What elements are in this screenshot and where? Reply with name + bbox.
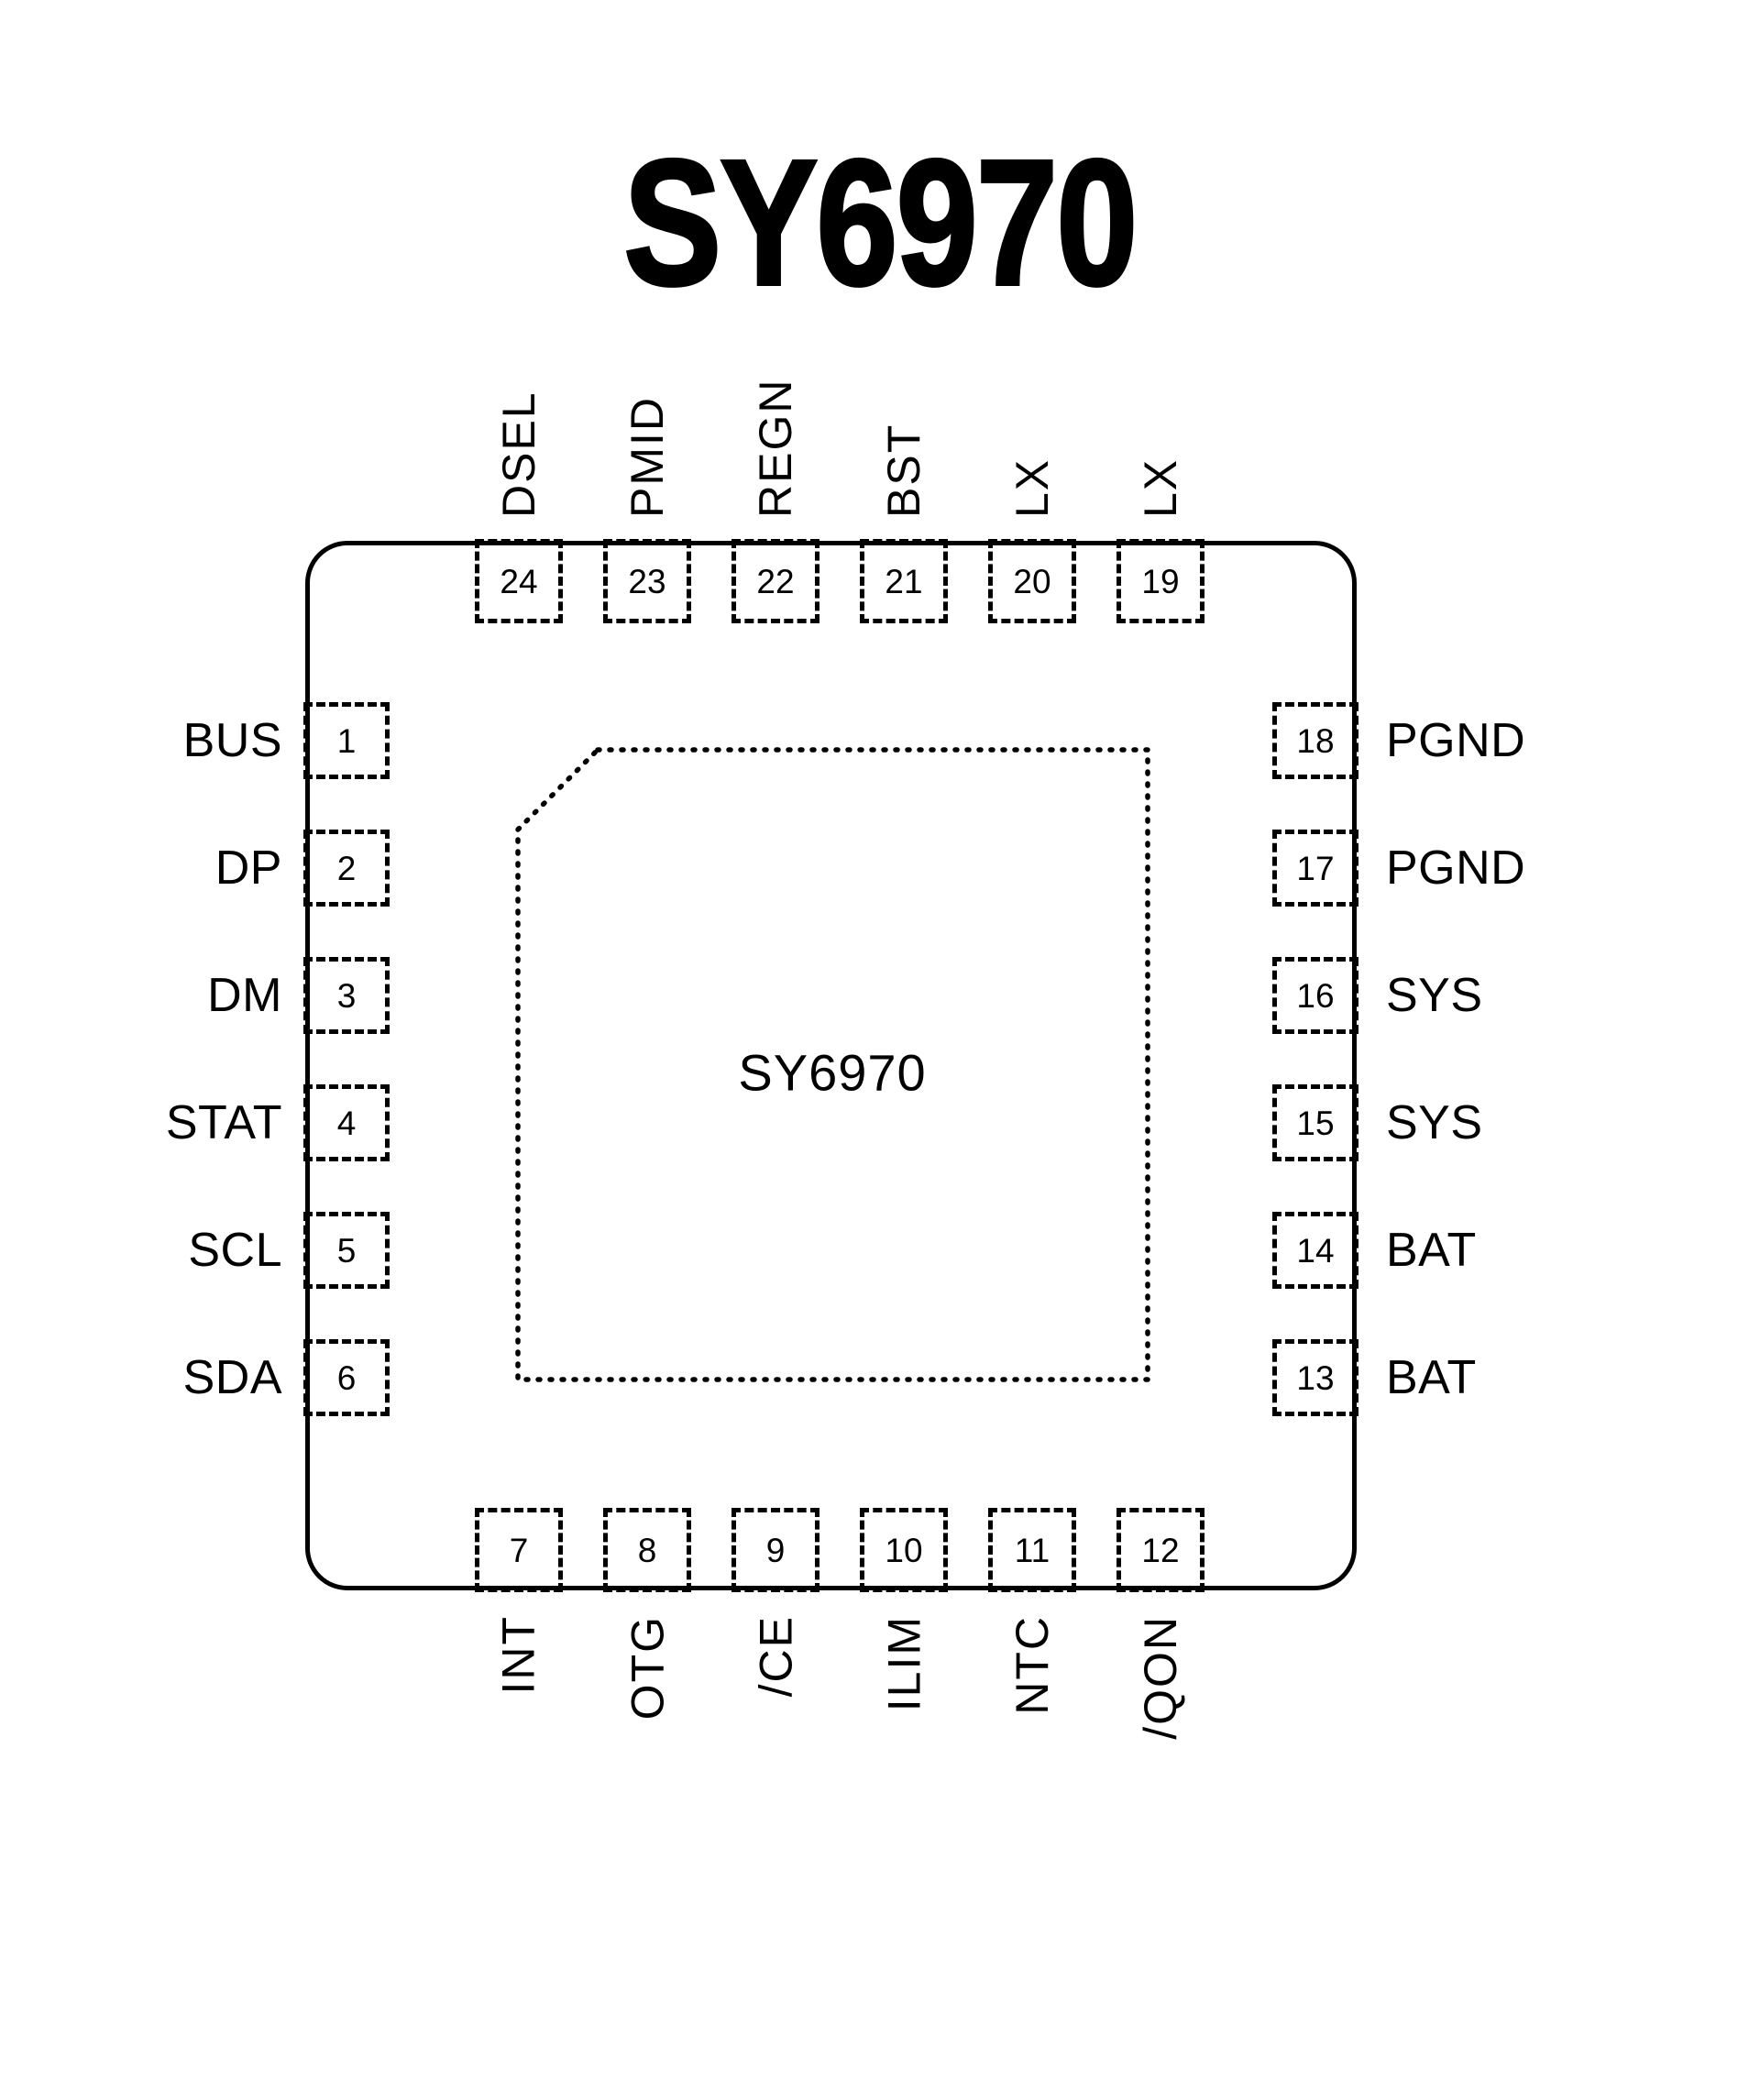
pin-8-label: OTG [624,1615,670,1720]
pin-15-box: 15 [1272,1084,1358,1161]
pin-18-label: PGND [1386,713,1525,768]
pin-1-label: BUS [183,713,282,768]
pin-9-label: /CE [753,1615,798,1697]
pin-9-number: 9 [766,1534,786,1567]
pin-23-label: PMID [624,396,670,518]
pin-21-number: 21 [885,565,922,599]
pin-14-number: 14 [1296,1234,1334,1268]
pinout-diagram: SY6970 SY6970 24 23 22 21 20 19 DSEL PMI… [0,0,1760,2100]
pin-6-label: SDA [183,1350,282,1405]
pin-4-label: STAT [166,1095,282,1150]
pin-15-number: 15 [1296,1106,1334,1140]
pin-19-label: LX [1138,458,1183,518]
pin-1-box: 1 [303,702,390,779]
pin-19-number: 19 [1141,565,1179,599]
pin-24-label: DSEL [496,390,542,518]
pin-22-number: 22 [756,565,794,599]
pin-20-number: 20 [1013,565,1050,599]
pin-12-label: /QON [1138,1615,1183,1740]
pin-5-label: SCL [188,1223,282,1278]
pin-18-number: 18 [1296,724,1334,758]
pin-3-box: 3 [303,957,390,1034]
pin-10-label: ILIM [881,1615,927,1711]
pin-9-box: 9 [731,1508,819,1592]
pin-19-box: 19 [1116,539,1204,623]
chip-part-number: SY6970 [738,1043,926,1103]
pin-11-number: 11 [1015,1534,1050,1567]
pin-22-box: 22 [731,539,819,623]
page-title: SY6970 [159,134,1601,313]
pin-13-label: BAT [1386,1350,1477,1405]
pin-21-box: 21 [860,539,948,623]
pin-14-label: BAT [1386,1223,1477,1278]
pin-20-label: LX [1009,458,1055,518]
pin-6-number: 6 [337,1361,357,1395]
pin-4-number: 4 [337,1106,357,1140]
pin-17-box: 17 [1272,830,1358,907]
pin-3-number: 3 [337,979,357,1013]
pin-7-box: 7 [475,1508,563,1592]
pin-22-label: REGN [753,379,798,518]
pin-16-number: 16 [1296,979,1334,1013]
pin-20-box: 20 [988,539,1076,623]
pin-8-box: 8 [603,1508,691,1592]
pin-13-box: 13 [1272,1339,1358,1416]
pin-10-number: 10 [885,1534,922,1567]
pin-6-box: 6 [303,1339,390,1416]
pin-18-box: 18 [1272,702,1358,779]
pin-7-label: INT [496,1615,542,1695]
pin-16-box: 16 [1272,957,1358,1034]
pin-5-box: 5 [303,1212,390,1289]
pin-7-number: 7 [510,1534,529,1567]
pin-17-label: PGND [1386,841,1525,896]
pin-14-box: 14 [1272,1212,1358,1289]
pin-5-number: 5 [337,1234,357,1268]
pin-3-label: DM [207,968,282,1023]
pin-12-box: 12 [1116,1508,1204,1592]
pin-24-box: 24 [475,539,563,623]
pin-11-box: 11 [988,1508,1076,1592]
pin-11-label: NTC [1009,1615,1055,1715]
pin-17-number: 17 [1296,852,1334,885]
pin-16-label: SYS [1386,968,1483,1023]
pin-2-label: DP [215,841,282,896]
pin-21-label: BST [881,423,927,518]
pin-4-box: 4 [303,1084,390,1161]
pin-10-box: 10 [860,1508,948,1592]
pin-2-box: 2 [303,830,390,907]
pin-12-number: 12 [1141,1534,1179,1567]
pin-8-number: 8 [638,1534,657,1567]
pin-2-number: 2 [337,852,357,885]
pin-15-label: SYS [1386,1095,1483,1150]
pin-1-number: 1 [337,724,357,758]
pin-13-number: 13 [1296,1361,1334,1395]
pin-24-number: 24 [500,565,537,599]
pin-23-box: 23 [603,539,691,623]
pin-23-number: 23 [628,565,665,599]
